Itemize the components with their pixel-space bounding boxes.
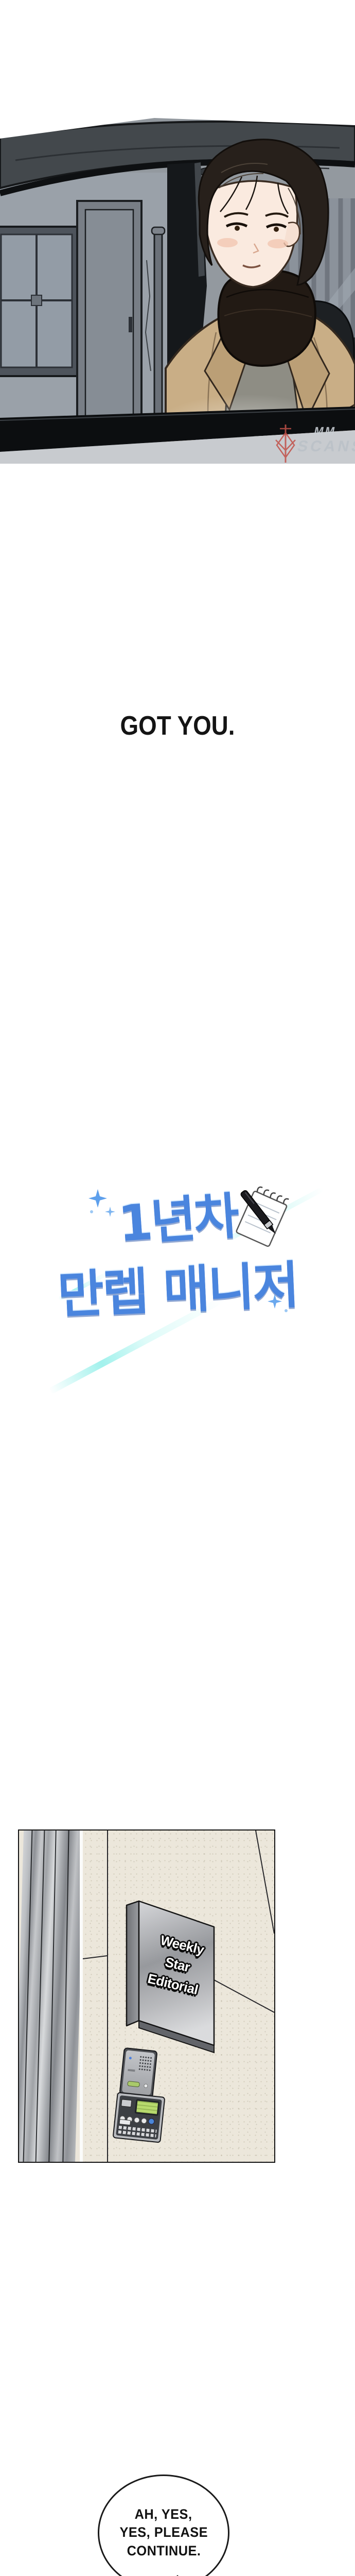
pen-notepad-icon [234, 1181, 293, 1258]
bubble-line2: YES, PLEASE [119, 2523, 208, 2541]
keypad-card-slot [119, 2119, 131, 2125]
speech-bubble-tail [170, 2572, 221, 2576]
keypad-lcd [135, 2099, 160, 2116]
intercom-face [122, 2050, 155, 2095]
speech-bubble: AH, YES, YES, PLEASE CONTINUE. [98, 2475, 229, 2576]
keypad-lcd-screen [136, 2101, 158, 2114]
panel-editorial-door: Weekly Star Editorial [18, 1829, 275, 2163]
intercom-speaker-grid [138, 2055, 152, 2072]
narration-got-you: GOT YOU. [21, 713, 333, 739]
intercom-led [129, 2057, 132, 2059]
intercom-button [144, 2083, 148, 2088]
keypad-face [116, 2095, 162, 2140]
bubble-line1: AH, YES, [135, 2505, 192, 2523]
bubble-line3: CONTINUE. [127, 2542, 201, 2560]
series-logo-line2: 만렙 매니저 [0, 1242, 355, 1330]
door-keypad [113, 2092, 166, 2143]
webtoon-page: MM SCANS GOT YOU. 1년차 만렙 매니저 [0, 0, 355, 2576]
intercom-slot [128, 2069, 135, 2072]
intercom-green-light [127, 2081, 140, 2087]
keypad-key [121, 2099, 132, 2107]
panel-car-interior: MM SCANS [0, 111, 355, 464]
car-interior-illustration [0, 111, 355, 464]
door-intercom [119, 2047, 157, 2098]
